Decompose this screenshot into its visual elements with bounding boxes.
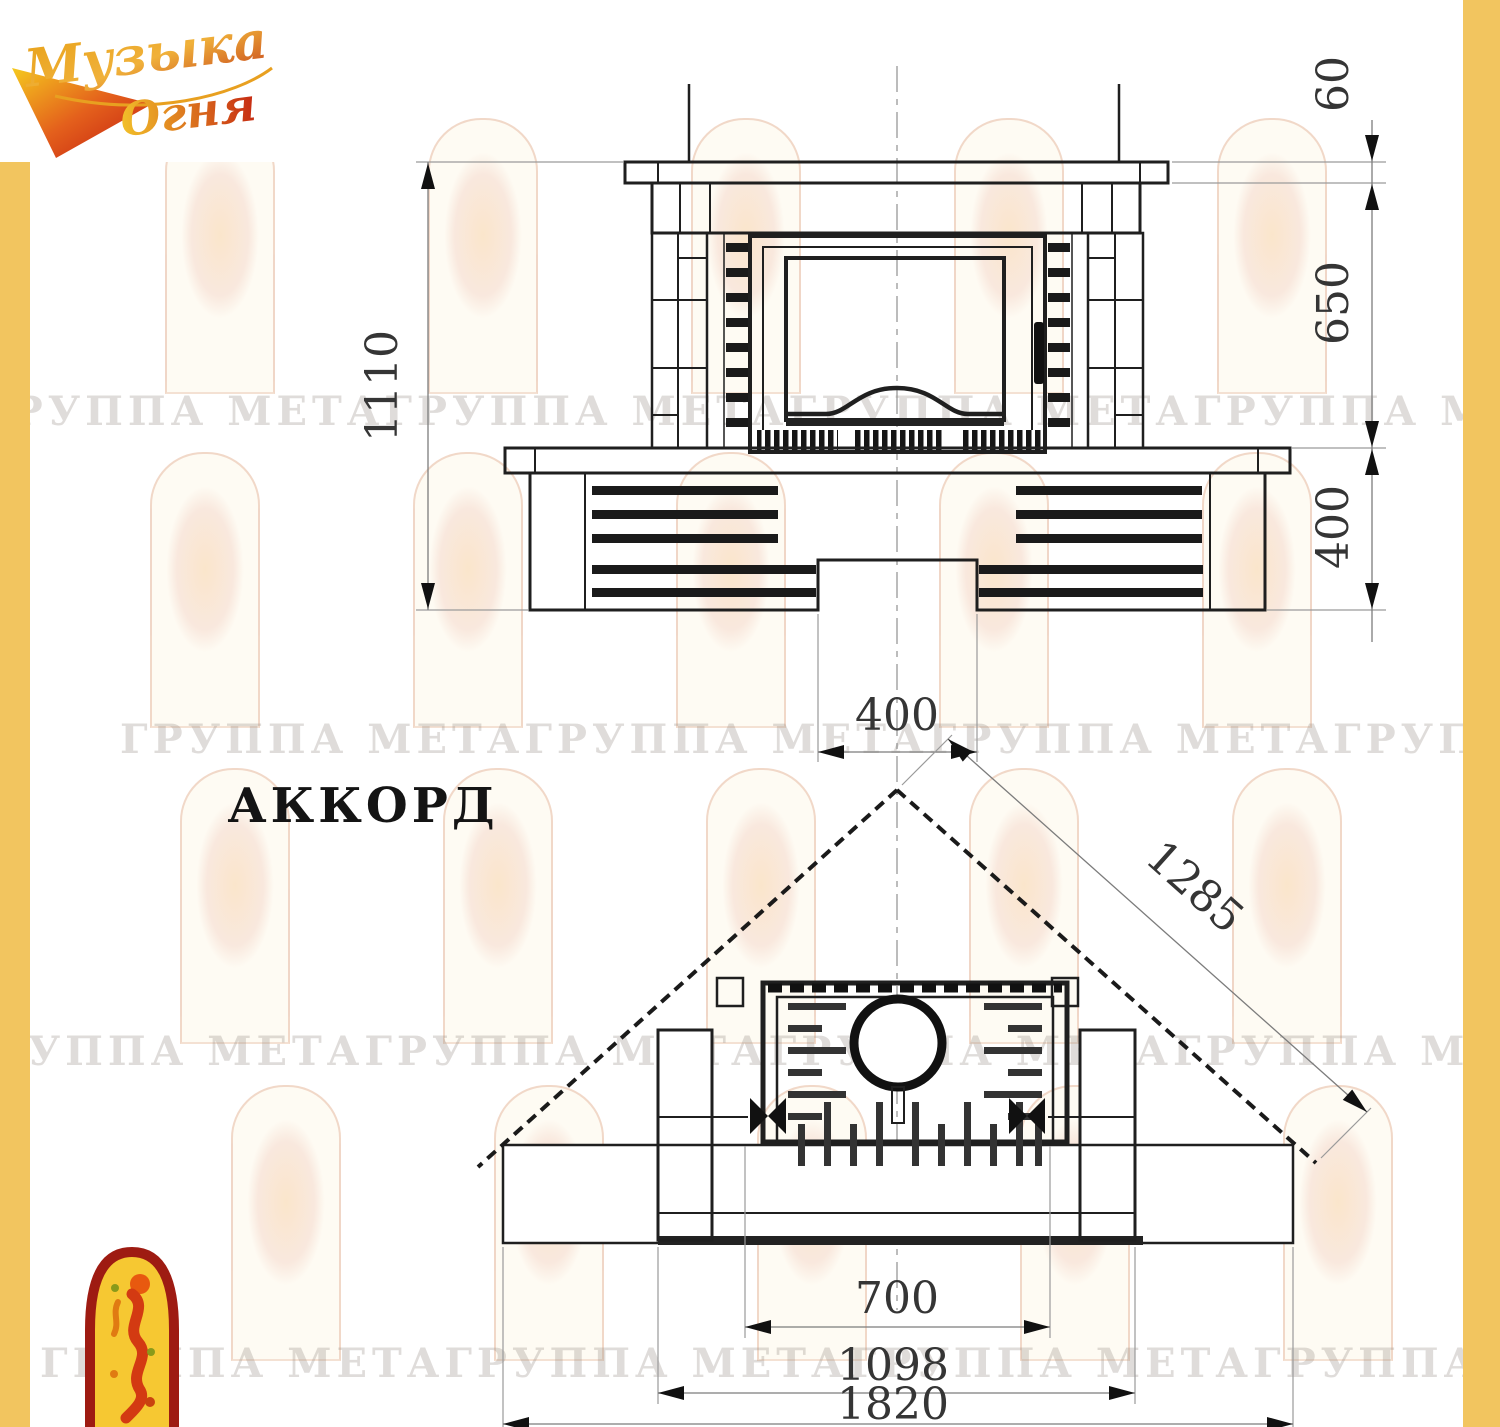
left-pillar <box>652 233 750 448</box>
fireplace-technical-drawing: 1110 60 650 400 400 АККОРД <box>0 0 1500 1427</box>
brand-logo: Музыка Огня <box>0 0 282 162</box>
front-elevation-view: 1110 60 650 400 400 <box>357 56 1386 762</box>
dim-firebox-height: 650 <box>1308 261 1359 345</box>
catalog-page: ГРУППА МЕТАГРУППА МЕТАГРУППА МЕТАГРУППА … <box>0 0 1500 1427</box>
flue-outlet-circle <box>854 999 942 1087</box>
door-handle <box>1034 322 1044 384</box>
dim-notch-width: 400 <box>855 690 939 741</box>
dim-diagonal: 1285 <box>1136 831 1254 944</box>
firebox-plan <box>750 983 1067 1166</box>
dim-plan-overall: 1820 <box>837 1379 949 1427</box>
dim-mantel-thickness: 60 <box>1308 56 1359 112</box>
log-retainer-wave <box>786 388 1004 414</box>
left-louver-slats <box>726 243 748 427</box>
dim-plan-opening: 700 <box>855 1273 939 1324</box>
right-pillar <box>1046 233 1143 448</box>
plan-view: 1285 700 1098 1820 <box>478 735 1371 1427</box>
dim-base-height: 400 <box>1308 485 1359 569</box>
flame-emblem-art <box>84 1242 180 1427</box>
right-louver-slats <box>1048 243 1070 427</box>
dim-front-height: 1110 <box>357 330 408 442</box>
flame-emblem <box>84 1242 180 1427</box>
brand-word-2: Огня <box>117 77 259 147</box>
brand-logo-art: Музыка Огня <box>0 0 282 162</box>
plan-dimensions: 1285 700 1098 1820 <box>503 735 1371 1427</box>
model-title: АККОРД <box>227 778 498 834</box>
firebox-glass-door <box>786 258 1004 420</box>
under-mantel-band <box>652 183 1140 233</box>
